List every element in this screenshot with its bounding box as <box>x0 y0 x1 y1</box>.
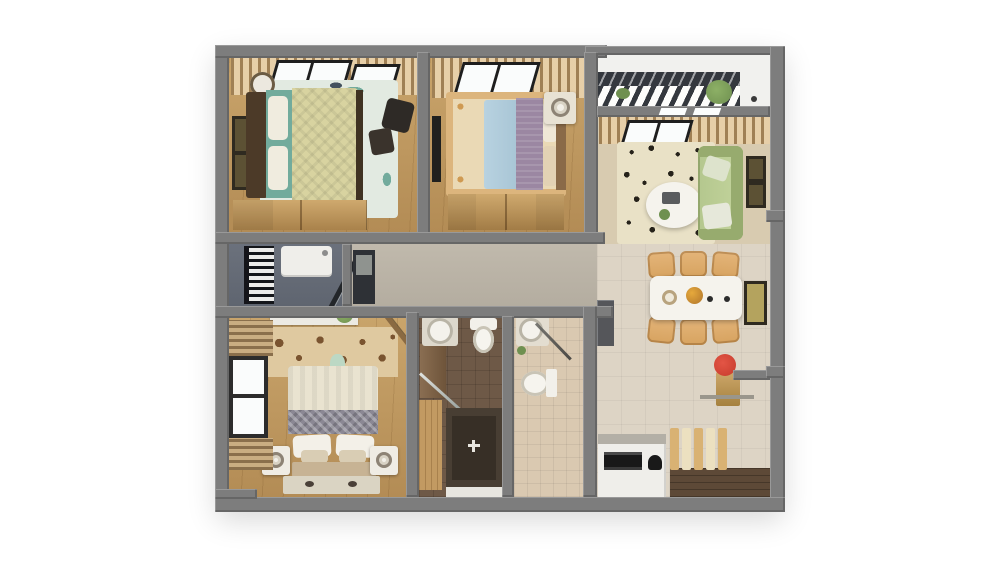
wood-slat-screen <box>670 428 679 470</box>
bathroom1-wood-closet <box>419 400 442 490</box>
wall-tv <box>432 116 441 182</box>
kettle-icon <box>648 455 662 470</box>
dining-plate-icon <box>662 290 677 305</box>
toilet-bowl <box>521 371 549 396</box>
bedroom3-blinds <box>229 320 273 356</box>
wall-dining-kitchen-stub <box>733 370 770 380</box>
rack-edge <box>244 246 249 304</box>
dining-wall-art <box>744 281 767 325</box>
bed-pillow <box>268 96 288 140</box>
kitchen-counter-top <box>598 434 666 444</box>
dining-flowers-icon <box>686 287 703 304</box>
sofa-blanket <box>701 202 732 230</box>
dining-chair <box>680 319 707 345</box>
wood-slat-screen <box>718 428 727 470</box>
bedroom1-bed-footboard <box>356 90 363 200</box>
window-mullion <box>652 123 661 143</box>
stool <box>368 127 395 156</box>
bathroom1-vanity <box>420 344 446 398</box>
wall-pilaster <box>766 210 785 222</box>
bedroom3-sill <box>229 438 273 470</box>
wood-slat-screen <box>694 428 703 470</box>
living-wall-frame-1 <box>746 156 766 182</box>
wood-slat-screen <box>706 428 715 470</box>
window-mullion <box>490 65 501 93</box>
wall-outer-left <box>215 45 229 510</box>
wall-bedroom2-right <box>584 52 598 238</box>
bedroom3-blanket-band <box>288 410 378 434</box>
sofa-armrest-bottom <box>698 229 743 240</box>
round-sink <box>427 318 453 344</box>
slipper-dot <box>348 481 357 487</box>
dining-dot-2 <box>724 296 730 302</box>
window-mullion <box>229 394 268 398</box>
living-wall-frame-2 <box>746 182 766 208</box>
wall-bedroom3-right <box>406 312 419 497</box>
wall-mid-horizontal <box>215 232 605 244</box>
sofa-back <box>731 146 743 240</box>
wall-pilaster <box>766 366 785 378</box>
apartment-floor-plan <box>0 0 1000 563</box>
wall-bathroom-divider <box>502 316 514 497</box>
wood-slat-screen <box>682 428 691 470</box>
screenshot-canvas: { "image_type": "3d-apartment-floor-plan… <box>0 0 1000 563</box>
balcony-window-slit <box>693 108 722 115</box>
wall-outer-bottom <box>215 497 785 512</box>
slipper-dot <box>305 481 314 487</box>
dresser-seam <box>300 200 302 230</box>
wall-balcony-top <box>585 46 785 55</box>
coffee-table <box>646 182 702 228</box>
bedroom3-headboard-bench <box>292 462 376 477</box>
laptop-icon <box>662 192 680 204</box>
table-plant-icon <box>659 209 670 220</box>
wall-bottom-notch <box>215 489 257 499</box>
bedroom2-window <box>453 62 541 96</box>
wall-shelf <box>700 395 754 399</box>
shower-drain-icon <box>472 440 475 452</box>
bedroom3-duvet <box>288 366 378 412</box>
shoe-cabinet-top <box>356 255 372 275</box>
balcony-plant-icon <box>706 80 732 104</box>
shower-ledge <box>446 487 502 497</box>
wall-outer-right <box>770 46 785 510</box>
bedside-rug <box>283 476 380 494</box>
nightstand-lamp-icon <box>376 452 392 468</box>
wall-utility-corridor <box>342 244 352 306</box>
nightstand-lamp-icon <box>551 98 570 117</box>
dining-dot-1 <box>707 296 713 302</box>
balcony-plant-small-icon <box>616 88 630 99</box>
balcony-window-slit <box>659 108 688 115</box>
wall-outer-top <box>215 45 607 58</box>
bedroom2-blanket-mauve <box>516 98 543 190</box>
wardrobe-seam <box>505 194 507 230</box>
dining-chair <box>711 251 740 279</box>
bedroom1-quilt <box>292 88 358 200</box>
bedroom2-blanket-blue <box>484 100 516 189</box>
washer-knob-icon <box>322 250 328 256</box>
toilet-bowl <box>473 326 494 353</box>
dining-chair <box>680 251 707 277</box>
oven-front <box>604 452 642 470</box>
dining-chair <box>647 251 676 279</box>
sofa-armrest-top <box>698 146 743 157</box>
corridor-floor <box>352 244 597 306</box>
drying-rack <box>249 246 274 304</box>
wall-bathroom2-right <box>583 306 597 497</box>
toilet <box>546 369 557 397</box>
bed-pillow <box>268 146 288 190</box>
wall-bedroom1-bedroom2 <box>417 52 430 238</box>
balcony-drain-dot <box>751 96 757 102</box>
kitchen-dark-wood-floor <box>670 468 770 497</box>
dining-chair <box>711 316 740 344</box>
bedroom1-headboard <box>246 92 268 198</box>
bed-pillow <box>543 146 557 186</box>
soap-plant-dot <box>517 346 526 355</box>
